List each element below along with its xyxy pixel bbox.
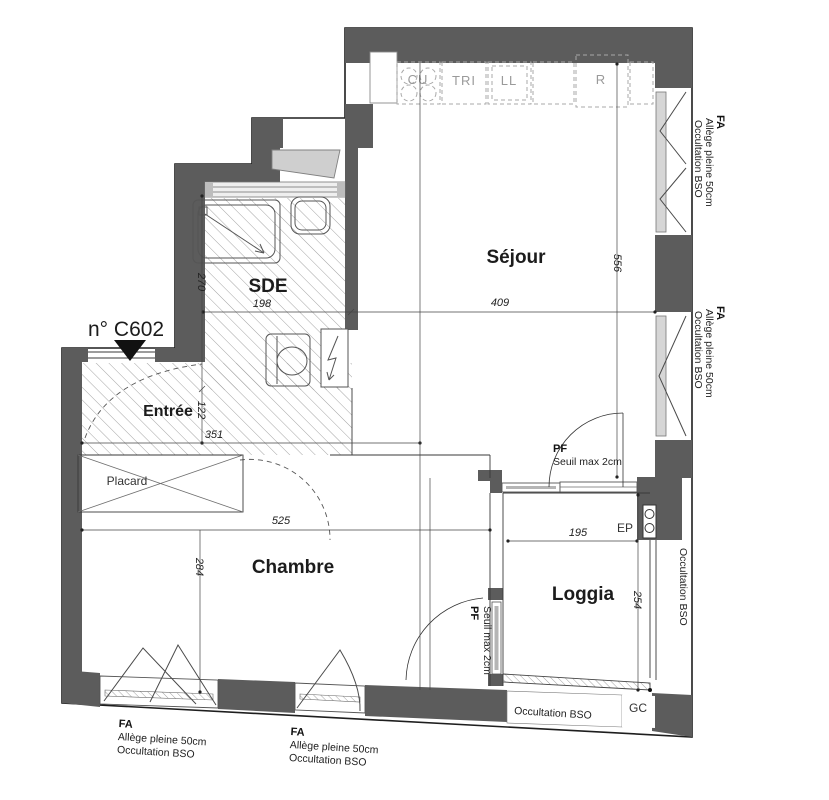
occultation-right-label: Occultation BSO	[677, 548, 689, 626]
pf-sejour-note: Seuil max 2cm	[553, 456, 622, 468]
dim-556: 556	[611, 254, 623, 273]
pf-chambre-note: Seuil max 2cm	[481, 606, 493, 675]
fa-bottom-mid-annotation: FA Allège pleine 50cm Occultation BSO	[289, 726, 380, 769]
dim-122: 122	[195, 401, 207, 419]
room-label-entree: Entrée	[143, 403, 193, 420]
fa-bottom-left-annotation: FA Allège pleine 50cm Occultation BSO	[117, 718, 208, 761]
unit-number: n° C602	[88, 318, 164, 341]
room-label-placard: Placard	[107, 474, 148, 488]
svg-text:FA: FA	[118, 718, 133, 731]
dim-284: 284	[193, 557, 205, 576]
svg-text:FA: FA	[290, 726, 305, 739]
sejour-loggia-wall	[502, 413, 656, 538]
dim-254: 254	[631, 590, 643, 609]
dim-270: 270	[195, 272, 207, 292]
room-label-chambre: Chambre	[252, 557, 334, 578]
dim-195: 195	[569, 527, 588, 539]
svg-text:Occultation BSO: Occultation BSO	[692, 120, 704, 198]
pf-sejour-label: PF	[553, 443, 567, 455]
floor-plan-page: CU TRI LL R	[0, 0, 829, 800]
fa-right-mid-annotation: FA Allège pleine 50cm Occultation BSO	[692, 306, 726, 398]
placard-closet	[78, 455, 243, 512]
dim-525: 525	[272, 515, 291, 527]
appliance-label-r: R	[596, 72, 606, 87]
room-label-loggia: Loggia	[552, 584, 615, 605]
fa-right-top-annotation: FA Allège pleine 50cm Occultation BSO	[692, 115, 726, 207]
room-label-sejour: Séjour	[486, 247, 546, 268]
floor-plan-drawing: CU TRI LL R	[0, 0, 829, 800]
window-right-top	[656, 92, 686, 232]
appliance-label-tri: TRI	[452, 73, 476, 88]
room-label-sde: SDE	[248, 276, 287, 297]
appliance-label-ll: LL	[501, 73, 517, 88]
ep-label: EP	[617, 521, 633, 535]
dim-409: 409	[491, 297, 509, 309]
dim-351: 351	[205, 429, 223, 441]
pf-chambre-label: PF	[468, 606, 480, 620]
window-right-mid	[656, 316, 686, 436]
appliance-label-cu: CU	[408, 72, 429, 87]
gc-label: GC	[629, 701, 647, 715]
svg-text:Occultation BSO: Occultation BSO	[692, 311, 704, 389]
dim-198: 198	[253, 298, 272, 310]
